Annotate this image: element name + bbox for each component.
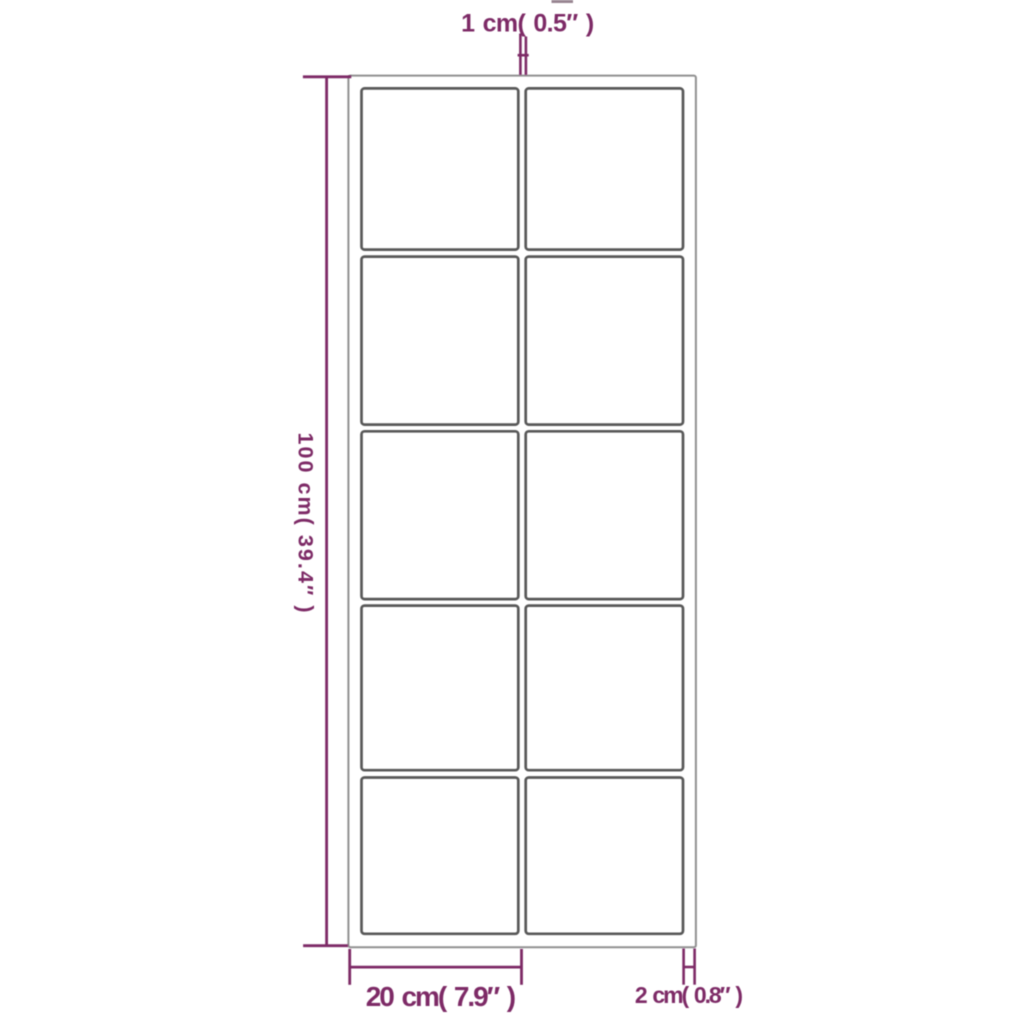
svg-text:2 cm( 0.8″ ): 2 cm( 0.8″ )	[635, 982, 743, 1008]
svg-text:20 cm( 7.9″ ): 20 cm( 7.9″ )	[366, 981, 515, 1012]
svg-text:1 cm( 0.5″ ): 1 cm( 0.5″ )	[461, 10, 594, 38]
svg-text:100 cm( 39.4″ ): 100 cm( 39.4″ )	[293, 432, 317, 614]
